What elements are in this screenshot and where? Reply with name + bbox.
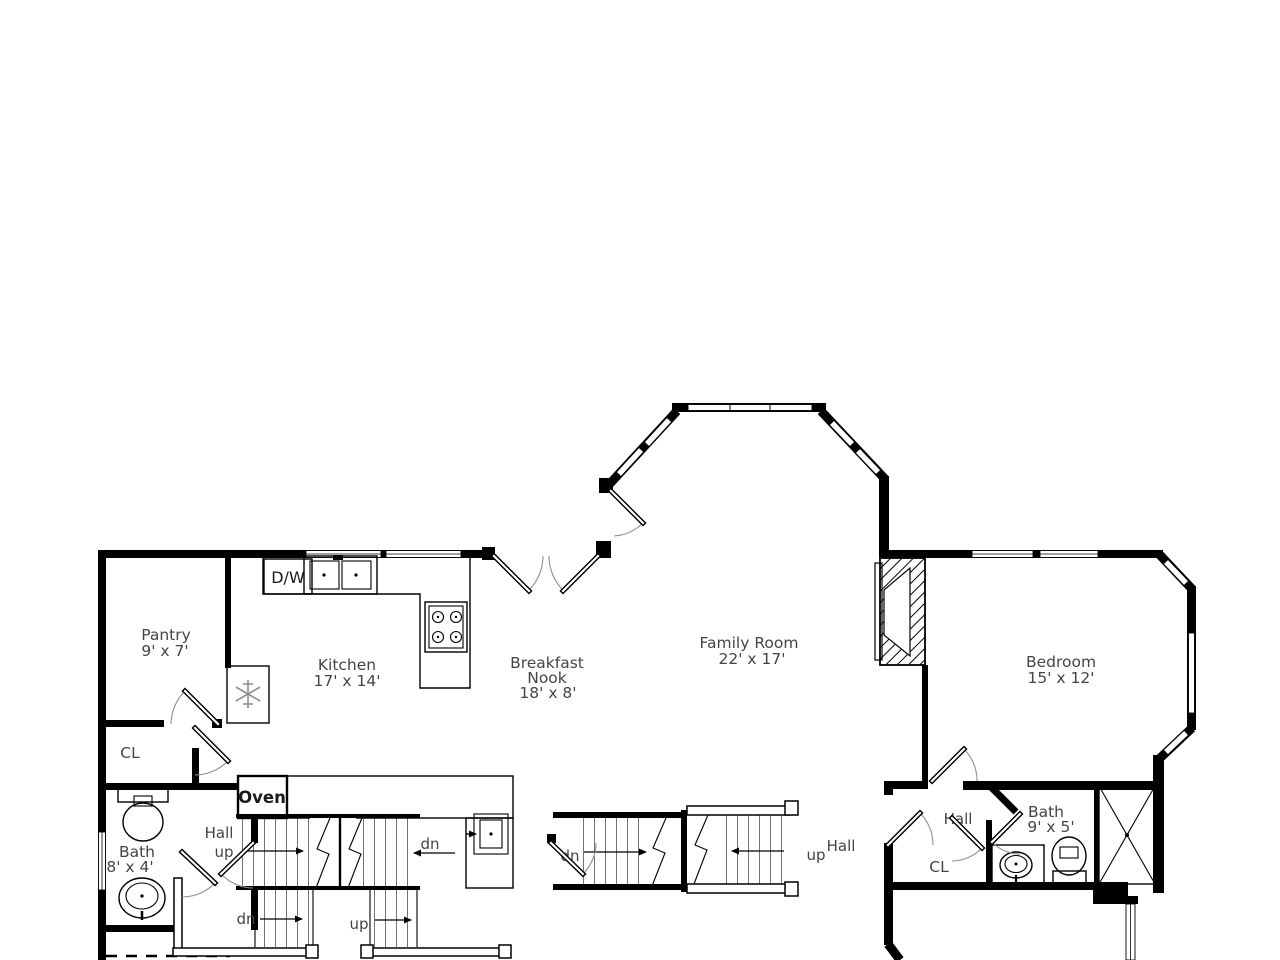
lower-room-window-icon bbox=[1126, 904, 1135, 960]
wall-clL-right bbox=[192, 748, 199, 788]
railing-vertical bbox=[174, 878, 182, 950]
wall-family-right bbox=[879, 476, 889, 558]
stair-label-upper-up: up bbox=[214, 843, 233, 861]
wall-step bbox=[1093, 882, 1128, 904]
dishwasher-label: D/W bbox=[271, 568, 305, 587]
wall-bathR-shower-divider bbox=[1094, 786, 1099, 882]
floor-plan: Pantry 9' x 7' Kitchen 17' x 14' Breakfa… bbox=[0, 0, 1280, 960]
wall-pantry-right bbox=[225, 558, 231, 668]
room-dims-bedroom: 15' x 12' bbox=[1028, 669, 1095, 687]
railing-2 bbox=[363, 948, 510, 956]
stair-label-lower-up: up bbox=[349, 915, 368, 933]
room-dims-nook: 18' x 8' bbox=[519, 684, 576, 702]
closet-label-right: CL bbox=[929, 858, 949, 876]
room-dims-kitchen: 17' x 14' bbox=[314, 672, 381, 690]
fireplace-icon bbox=[875, 558, 925, 665]
oven-label: Oven bbox=[238, 788, 286, 807]
stair-label-upper-dn: dn bbox=[420, 835, 439, 853]
wall-bathR-left bbox=[986, 820, 992, 882]
wall-hall-top bbox=[893, 781, 928, 789]
wall-hall-left-lower bbox=[884, 843, 893, 945]
stair-label-lower-dn: dn bbox=[236, 910, 255, 928]
wall-pantry-bottom bbox=[106, 720, 164, 727]
wall-bedroom-left bbox=[922, 665, 928, 783]
wall-left bbox=[98, 550, 106, 960]
wall-bathL-bottom bbox=[106, 925, 181, 932]
stair-label-mid-up: up bbox=[806, 846, 825, 864]
room-dims-bath-hall: 9' x 5' bbox=[1027, 818, 1074, 836]
railing-1 bbox=[173, 948, 317, 956]
bath-window-icon bbox=[99, 832, 106, 890]
hall-label-left: Hall bbox=[205, 824, 234, 842]
room-dims-family: 22' x 17' bbox=[719, 650, 786, 668]
stairs-middle bbox=[547, 801, 798, 896]
hall-label-middle: Hall bbox=[827, 837, 856, 855]
room-dims-pantry: 9' x 7' bbox=[141, 642, 188, 660]
closet-label-left: CL bbox=[120, 744, 140, 762]
room-dims-bath-small: 8' x 4' bbox=[106, 858, 153, 876]
wall-hall-left-upper bbox=[884, 781, 893, 795]
wall-step2 bbox=[1124, 896, 1138, 904]
